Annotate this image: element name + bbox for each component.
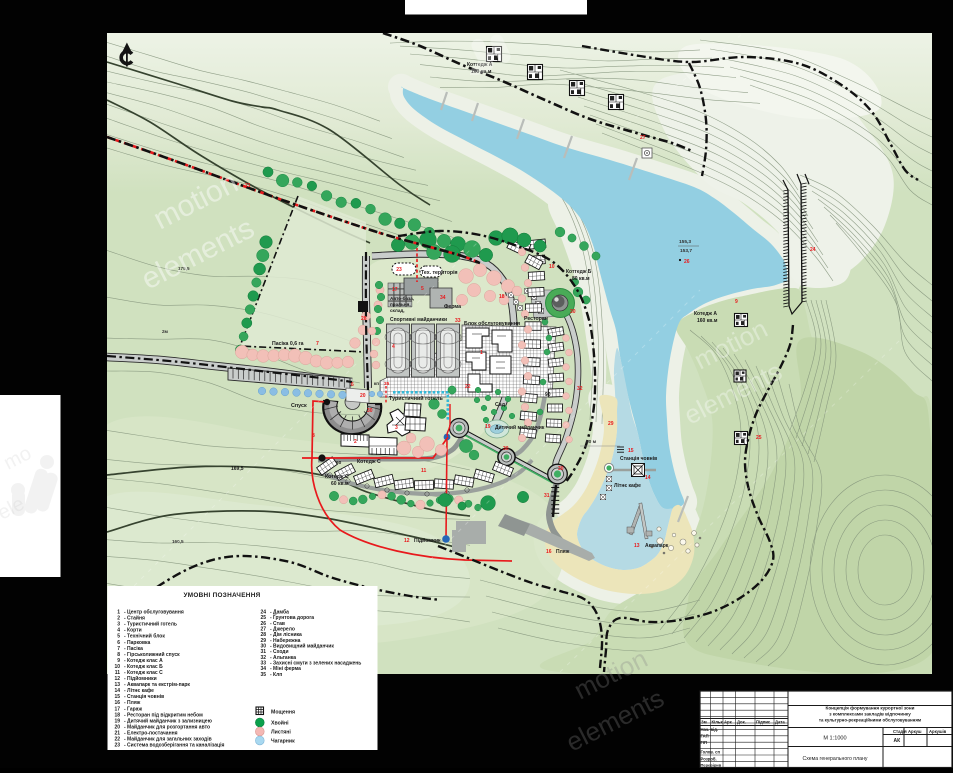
svg-text:153,7: 153,7 bbox=[680, 248, 692, 254]
svg-text:Котедж С: Котедж С bbox=[325, 474, 349, 480]
svg-text:Спуск: Спуск bbox=[291, 403, 307, 409]
svg-text:155,3: 155,3 bbox=[679, 239, 691, 245]
svg-text:- Пасіка: - Пасіка bbox=[124, 646, 143, 652]
svg-text:16: 16 bbox=[546, 549, 552, 555]
svg-text:- Котедж клас А: - Котедж клас А bbox=[124, 658, 163, 664]
svg-text:- Майданчик для загальних захо: - Майданчик для загальних заходів bbox=[124, 736, 212, 743]
svg-text:кп: кп bbox=[374, 381, 379, 386]
svg-text:та культурно-рекреаційними обс: та культурно-рекреаційними обслуговуванн… bbox=[819, 718, 921, 723]
svg-text:22: 22 bbox=[114, 737, 120, 743]
svg-text:30: 30 bbox=[570, 309, 576, 315]
svg-text:90: 90 bbox=[545, 392, 551, 398]
svg-text:склад,: склад, bbox=[390, 308, 405, 313]
svg-text:Котедж С: Котедж С bbox=[357, 459, 381, 465]
svg-text:Листяні: Листяні bbox=[271, 730, 291, 736]
svg-text:21: 21 bbox=[245, 183, 251, 189]
svg-text:Сад: Сад bbox=[495, 402, 506, 408]
svg-text:Розроб.: Розроб. bbox=[701, 757, 717, 762]
svg-text:29: 29 bbox=[608, 421, 614, 427]
svg-text:ГАП: ГАП bbox=[701, 734, 709, 739]
svg-text:Арк: Арк bbox=[724, 720, 733, 725]
svg-text:Кільк: Кільк bbox=[712, 720, 724, 725]
svg-text:7: 7 bbox=[117, 646, 120, 652]
svg-text:Аркуш: Аркуш bbox=[908, 729, 922, 734]
svg-text:Хвойні: Хвойні bbox=[271, 720, 289, 727]
svg-text:15: 15 bbox=[628, 448, 634, 454]
svg-text:8: 8 bbox=[312, 433, 315, 439]
svg-text:22: 22 bbox=[465, 384, 471, 390]
svg-text:25: 25 bbox=[756, 435, 762, 441]
svg-text:Блок обслуговування: Блок обслуговування bbox=[464, 320, 520, 327]
svg-text:Підйомник: Підйомник bbox=[414, 537, 441, 544]
svg-text:6: 6 bbox=[351, 382, 354, 388]
svg-text:9: 9 bbox=[735, 299, 738, 305]
svg-text:23: 23 bbox=[396, 267, 402, 273]
svg-text:12: 12 bbox=[404, 538, 410, 544]
svg-text:19: 19 bbox=[485, 424, 491, 430]
svg-text:30: 30 bbox=[367, 408, 373, 414]
svg-text:Дитячий майданчик: Дитячий майданчик bbox=[495, 424, 545, 431]
svg-text:33: 33 bbox=[455, 318, 461, 324]
svg-text:30: 30 bbox=[558, 466, 564, 472]
svg-text:20: 20 bbox=[360, 393, 366, 399]
svg-text:М 1:1000: М 1:1000 bbox=[823, 736, 846, 742]
svg-text:- Стайня: - Стайня bbox=[124, 615, 145, 622]
svg-text:Котедж А: Котедж А bbox=[694, 311, 717, 317]
svg-text:2: 2 bbox=[117, 616, 120, 622]
svg-text:17: 17 bbox=[114, 706, 120, 712]
svg-text:5: 5 bbox=[117, 634, 120, 640]
svg-text:35: 35 bbox=[260, 672, 266, 678]
svg-text:5: 5 bbox=[421, 286, 424, 292]
svg-text:169,5: 169,5 bbox=[231, 466, 244, 472]
svg-text:Пасіка 0,6 га: Пасіка 0,6 га bbox=[272, 341, 304, 347]
svg-text:Авто-база,: Авто-база, bbox=[390, 295, 414, 301]
svg-text:26: 26 bbox=[684, 259, 690, 265]
svg-text:- Літнє кафе: - Літнє кафе bbox=[124, 687, 154, 694]
svg-text:- Майданчик для розгортання ав: - Майданчик для розгортання авто bbox=[124, 724, 210, 731]
svg-text:- Туристичний готель: - Туристичний готель bbox=[124, 621, 177, 628]
svg-text:7: 7 bbox=[316, 341, 319, 347]
svg-text:- Технічний блок: - Технічний блок bbox=[124, 633, 165, 640]
svg-text:60 кв.м: 60 кв.м bbox=[331, 481, 349, 487]
svg-text:3: 3 bbox=[395, 425, 398, 431]
svg-text:19: 19 bbox=[114, 718, 120, 724]
svg-text:Чагарник: Чагарник bbox=[271, 739, 295, 745]
svg-text:Аркушів: Аркушів bbox=[929, 729, 947, 734]
svg-text:УМОВНІ ПОЗНАЧЕННЯ: УМОВНІ ПОЗНАЧЕННЯ bbox=[183, 592, 260, 599]
svg-text:Тех. територія: Тех. територія bbox=[421, 270, 458, 276]
svg-text:9: 9 bbox=[117, 658, 120, 664]
svg-text:23: 23 bbox=[114, 743, 120, 749]
svg-text:Док.: Док. bbox=[737, 720, 746, 725]
svg-text:1: 1 bbox=[480, 350, 483, 356]
svg-text:ГІП: ГІП bbox=[701, 740, 708, 745]
svg-text:АК: АК bbox=[894, 738, 902, 744]
svg-text:160 кв.м: 160 кв.м bbox=[697, 318, 718, 324]
svg-text:35: 35 bbox=[384, 381, 390, 387]
svg-text:з комплексами закладів відпочи: з комплексами закладів відпочинку bbox=[829, 712, 911, 717]
svg-text:18: 18 bbox=[499, 294, 505, 300]
svg-text:27: 27 bbox=[640, 135, 646, 141]
svg-text:Літнє кафе: Літнє кафе bbox=[614, 482, 641, 489]
svg-text:4: 4 bbox=[117, 628, 120, 634]
svg-text:50 м: 50 м bbox=[586, 439, 597, 445]
svg-text:14: 14 bbox=[114, 688, 120, 694]
svg-text:12: 12 bbox=[114, 676, 120, 682]
svg-text:31: 31 bbox=[544, 493, 550, 499]
svg-text:Аквапарк: Аквапарк bbox=[645, 543, 669, 549]
svg-text:Туристичний готель: Туристичний готель bbox=[389, 395, 443, 402]
svg-text:34: 34 bbox=[440, 295, 446, 301]
svg-text:2: 2 bbox=[354, 439, 357, 445]
svg-text:Пляж: Пляж bbox=[556, 549, 570, 555]
svg-text:60: 60 bbox=[336, 460, 342, 466]
svg-text:Стадія: Стадія bbox=[893, 729, 907, 734]
svg-text:4: 4 bbox=[392, 344, 395, 350]
svg-text:- Ресторан під відкритим небом: - Ресторан під відкритим небом bbox=[124, 711, 203, 718]
svg-text:13: 13 bbox=[634, 543, 640, 549]
svg-text:- Дитячий майданчик з зализниц: - Дитячий майданчик з зализницею bbox=[124, 717, 213, 724]
svg-text:Нач. від.: Нач. від. bbox=[701, 727, 719, 732]
svg-text:28: 28 bbox=[361, 316, 367, 322]
svg-text:Дата: Дата bbox=[775, 720, 785, 725]
svg-text:11: 11 bbox=[421, 468, 427, 474]
svg-text:пральня,: пральня, bbox=[390, 302, 411, 307]
svg-text:Мощення: Мощення bbox=[271, 709, 295, 715]
svg-text:14: 14 bbox=[645, 475, 651, 481]
svg-text:- Система водозберігання та ка: - Система водозберігання та каналізація bbox=[124, 742, 224, 749]
svg-text:2м: 2м bbox=[162, 329, 169, 334]
svg-text:Концепція формування курортної: Концепція формування курортної зони bbox=[826, 705, 915, 711]
svg-text:Підпис: Підпис bbox=[756, 720, 771, 725]
svg-text:80 кв.м: 80 кв.м bbox=[572, 276, 590, 282]
svg-text:Ресторан: Ресторан bbox=[524, 316, 548, 322]
svg-text:- Центр обслуговування: - Центр обслуговування bbox=[124, 609, 184, 616]
svg-text:24: 24 bbox=[810, 247, 816, 253]
svg-text:10: 10 bbox=[549, 264, 555, 270]
svg-text:Голов. сп: Голов. сп bbox=[701, 750, 721, 755]
svg-text:16: 16 bbox=[114, 700, 120, 706]
svg-text:Станція човнів: Станція човнів bbox=[620, 456, 657, 462]
svg-text:- Корти: - Корти bbox=[124, 628, 142, 634]
svg-text:Схема генерального плану: Схема генерального плану bbox=[802, 756, 867, 762]
svg-text:32: 32 bbox=[577, 386, 583, 392]
svg-text:Перевірив: Перевірив bbox=[701, 763, 722, 768]
svg-text:- Клп: - Клп bbox=[270, 672, 282, 678]
svg-text:- Гірськолижний спуск: - Гірськолижний спуск bbox=[124, 651, 180, 658]
svg-text:- Підйомники: - Підйомники bbox=[124, 675, 157, 682]
svg-text:17: 17 bbox=[392, 287, 398, 293]
svg-text:30: 30 bbox=[503, 446, 509, 452]
svg-text:Коттедж Б: Коттедж Б bbox=[566, 269, 592, 275]
svg-text:Зм: Зм bbox=[701, 720, 707, 725]
svg-text:- Пляж: - Пляж bbox=[124, 700, 141, 706]
svg-text:- Гараж: - Гараж bbox=[124, 706, 142, 712]
svg-text:Ферма: Ферма bbox=[444, 304, 461, 310]
